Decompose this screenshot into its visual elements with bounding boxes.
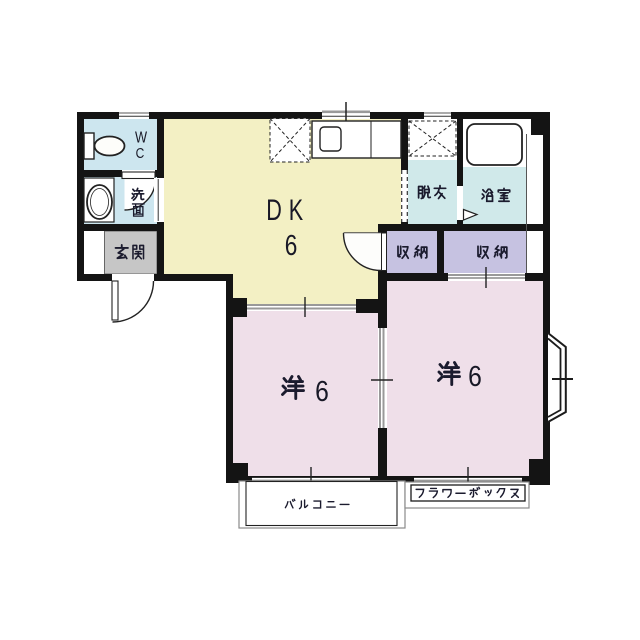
svg-text:D: D bbox=[266, 192, 282, 226]
svg-text:6: 6 bbox=[468, 360, 482, 392]
svg-text:K: K bbox=[289, 192, 304, 226]
svg-text:C: C bbox=[136, 145, 145, 162]
svg-text:6: 6 bbox=[315, 375, 329, 407]
svg-text:6: 6 bbox=[285, 228, 298, 261]
